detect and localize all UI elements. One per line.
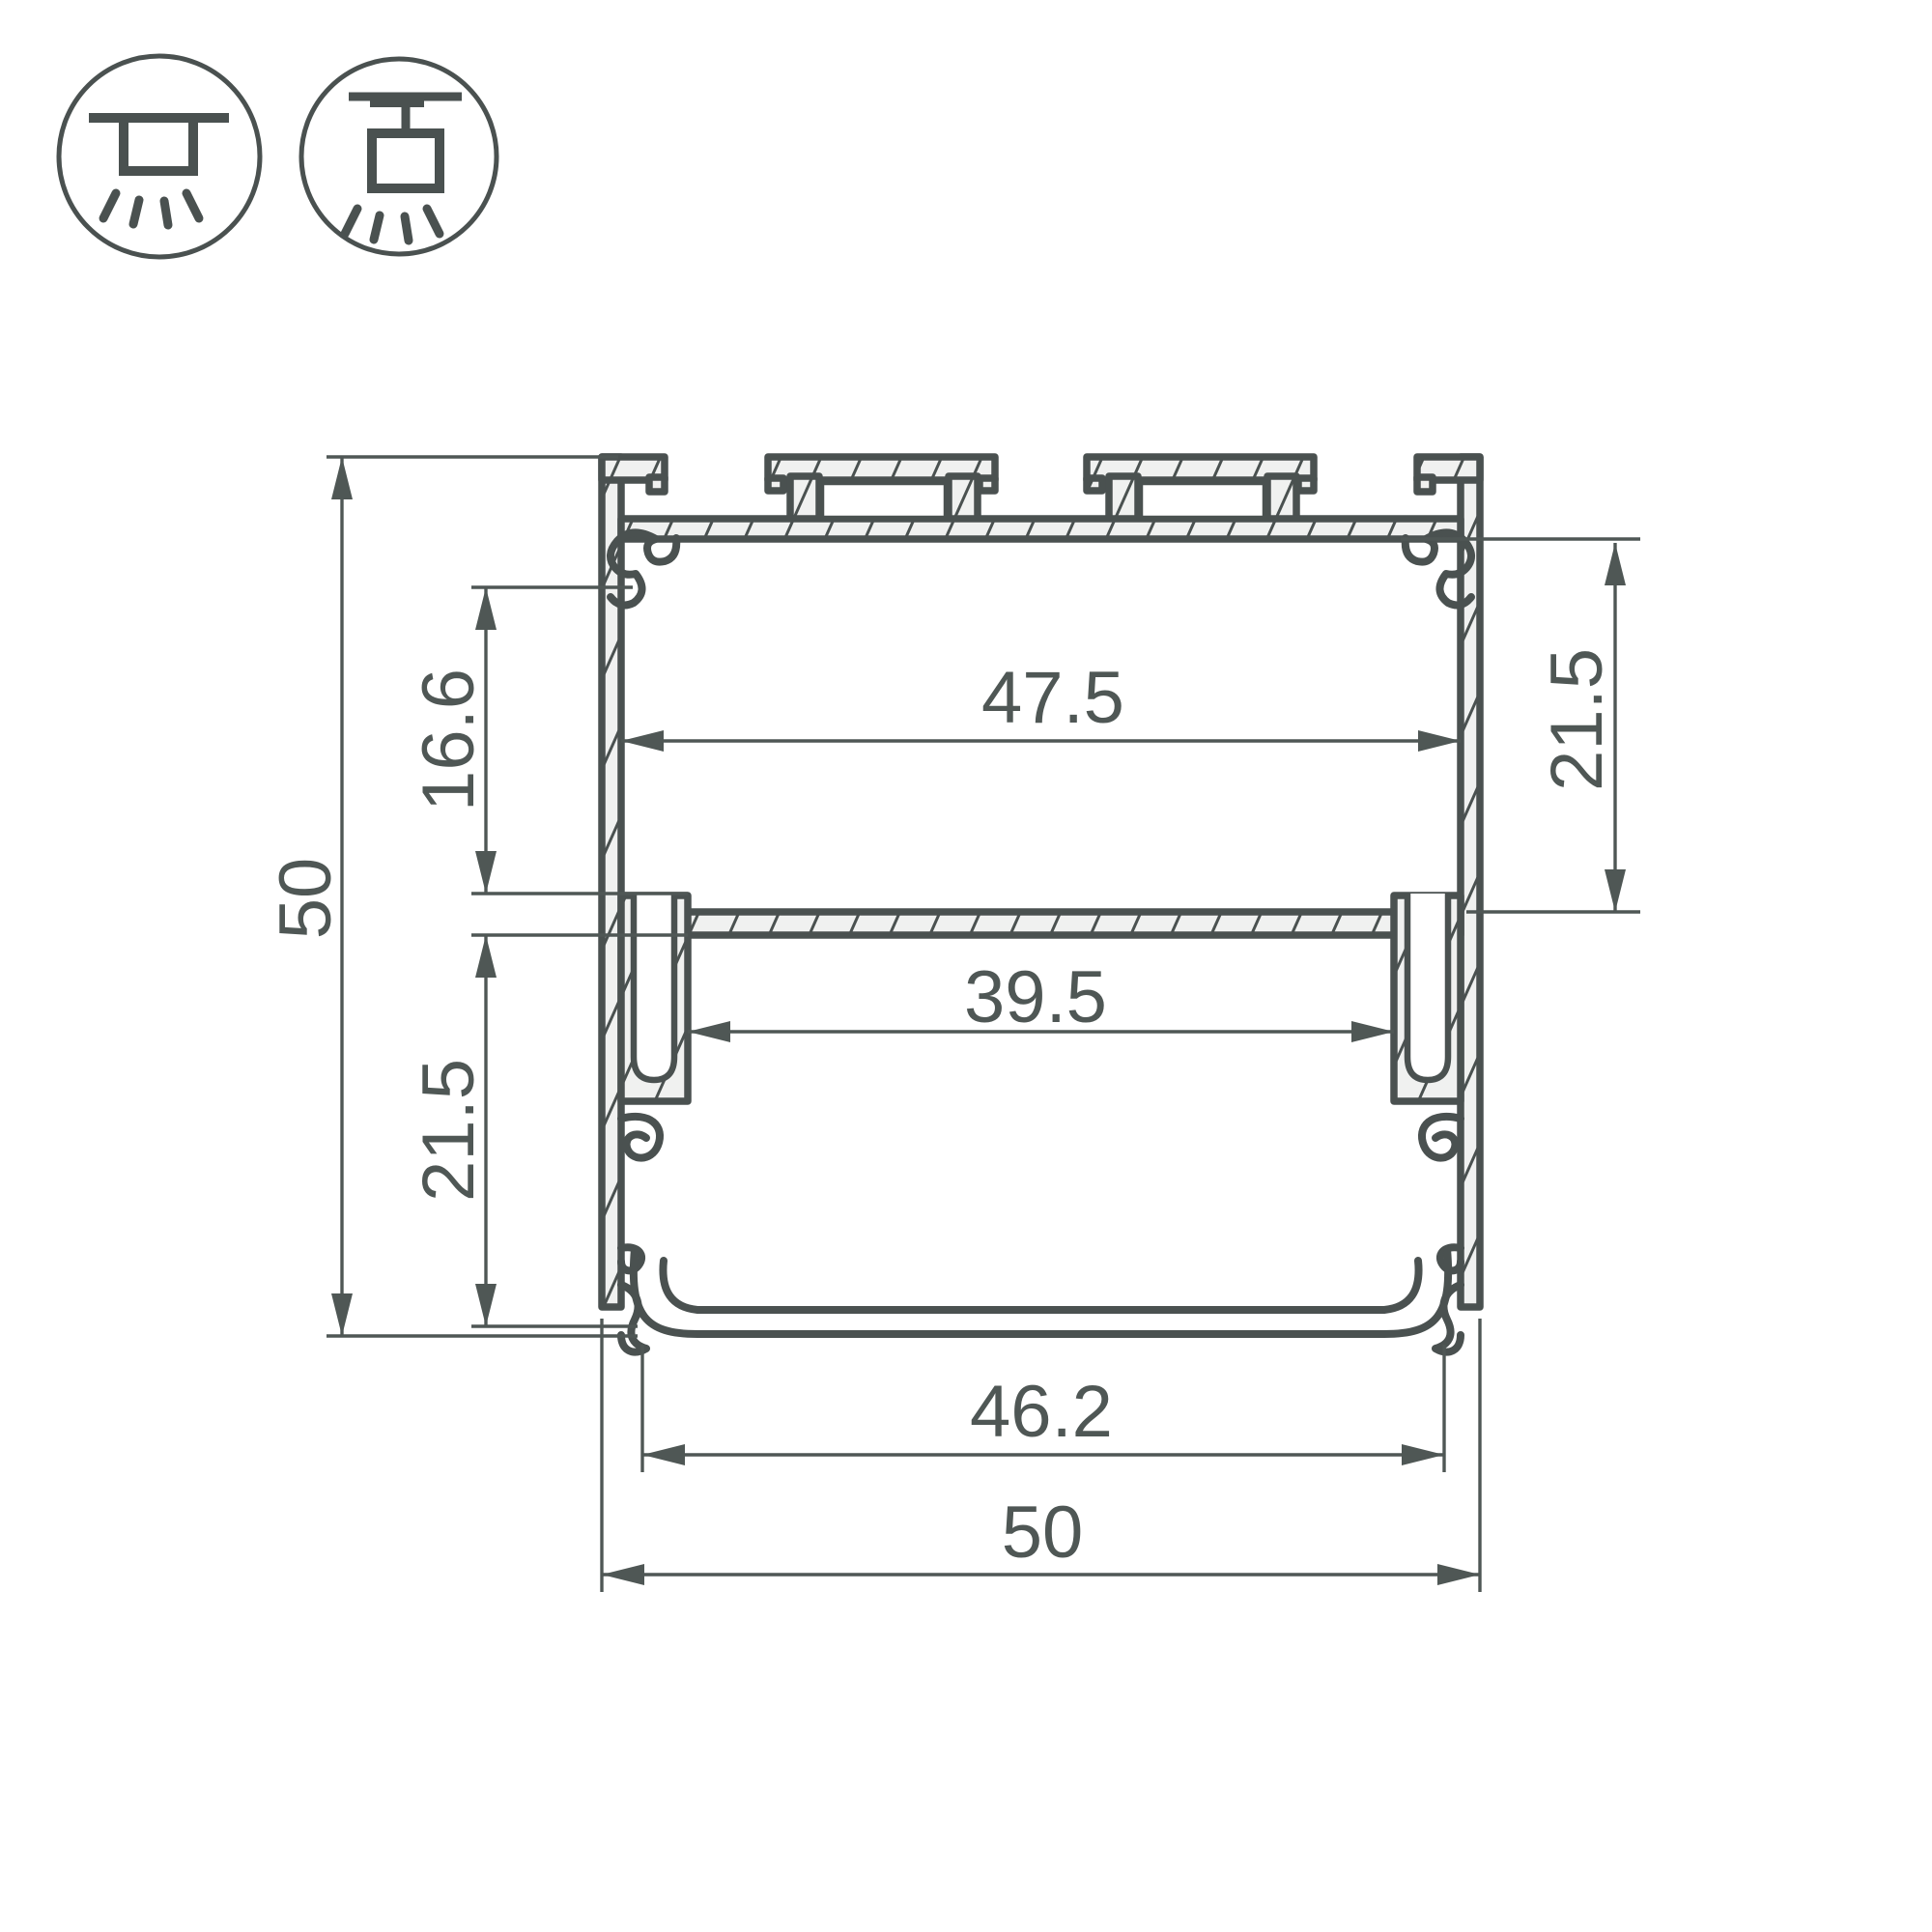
dimension-lower-inner-width: 39.5 [688, 956, 1394, 1042]
screw-chamber-right [1140, 482, 1265, 519]
dim-label-lower-inner-width: 39.5 [964, 956, 1107, 1038]
light-rays [103, 193, 199, 225]
technical-drawing-page: 50 16.6 21.5 47.5 21.5 [0, 0, 1932, 1932]
dimension-upper-inner-width: 47.5 [621, 657, 1461, 752]
screw-channel-right [1407, 894, 1448, 1080]
middle-shelf [621, 912, 1461, 935]
dim-label-diffuser-width: 46.2 [970, 1371, 1113, 1453]
top-tab-right-lip-b [1298, 478, 1314, 491]
top-left-cap-lip [649, 477, 665, 492]
right-wall [1461, 457, 1480, 1307]
profile-cross-section [602, 457, 1480, 1352]
mount-plate [370, 97, 424, 107]
pendant-mount-icon [301, 59, 497, 254]
screw-channel-left [634, 894, 674, 1080]
dimension-right-inner-height: 21.5 [1536, 543, 1626, 912]
profile-drawing-canvas: 50 16.6 21.5 47.5 21.5 [0, 0, 1932, 1932]
dim-label-overall-height: 50 [265, 858, 347, 940]
dim-label-upper-inner-width: 47.5 [981, 657, 1124, 739]
dimension-overall-height: 50 [265, 457, 353, 1336]
dim-label-right-inner-height: 21.5 [1536, 648, 1618, 791]
top-right-cap-lip [1417, 477, 1433, 492]
top-tab-left-lip-b [980, 478, 995, 491]
top-tab-right-lip-a [1087, 478, 1102, 491]
luminaire-box [124, 118, 193, 171]
dimension-diffuser-width: 46.2 [642, 1371, 1444, 1465]
luminaire-box [372, 133, 440, 188]
dimension-overall-width: 50 [602, 1492, 1480, 1585]
screw-chamber-left [821, 482, 947, 519]
top-tab-left-lip-a [768, 478, 783, 491]
dim-label-lower-left-inner-height: 21.5 [408, 1059, 490, 1202]
diffuser-outer [634, 1249, 1448, 1334]
dimension-lower-left-inner-height: 21.5 [408, 935, 497, 1326]
left-wall [602, 457, 621, 1307]
light-rays [345, 209, 440, 241]
diffuser-inner [663, 1261, 1418, 1310]
dim-label-upper-inner-height: 16.6 [408, 668, 490, 811]
dimension-upper-inner-height: 16.6 [408, 587, 497, 894]
dim-label-overall-width: 50 [1002, 1492, 1084, 1574]
surface-mount-icon [59, 56, 260, 257]
mount-type-icons [59, 56, 497, 257]
top-plate [621, 519, 1461, 539]
